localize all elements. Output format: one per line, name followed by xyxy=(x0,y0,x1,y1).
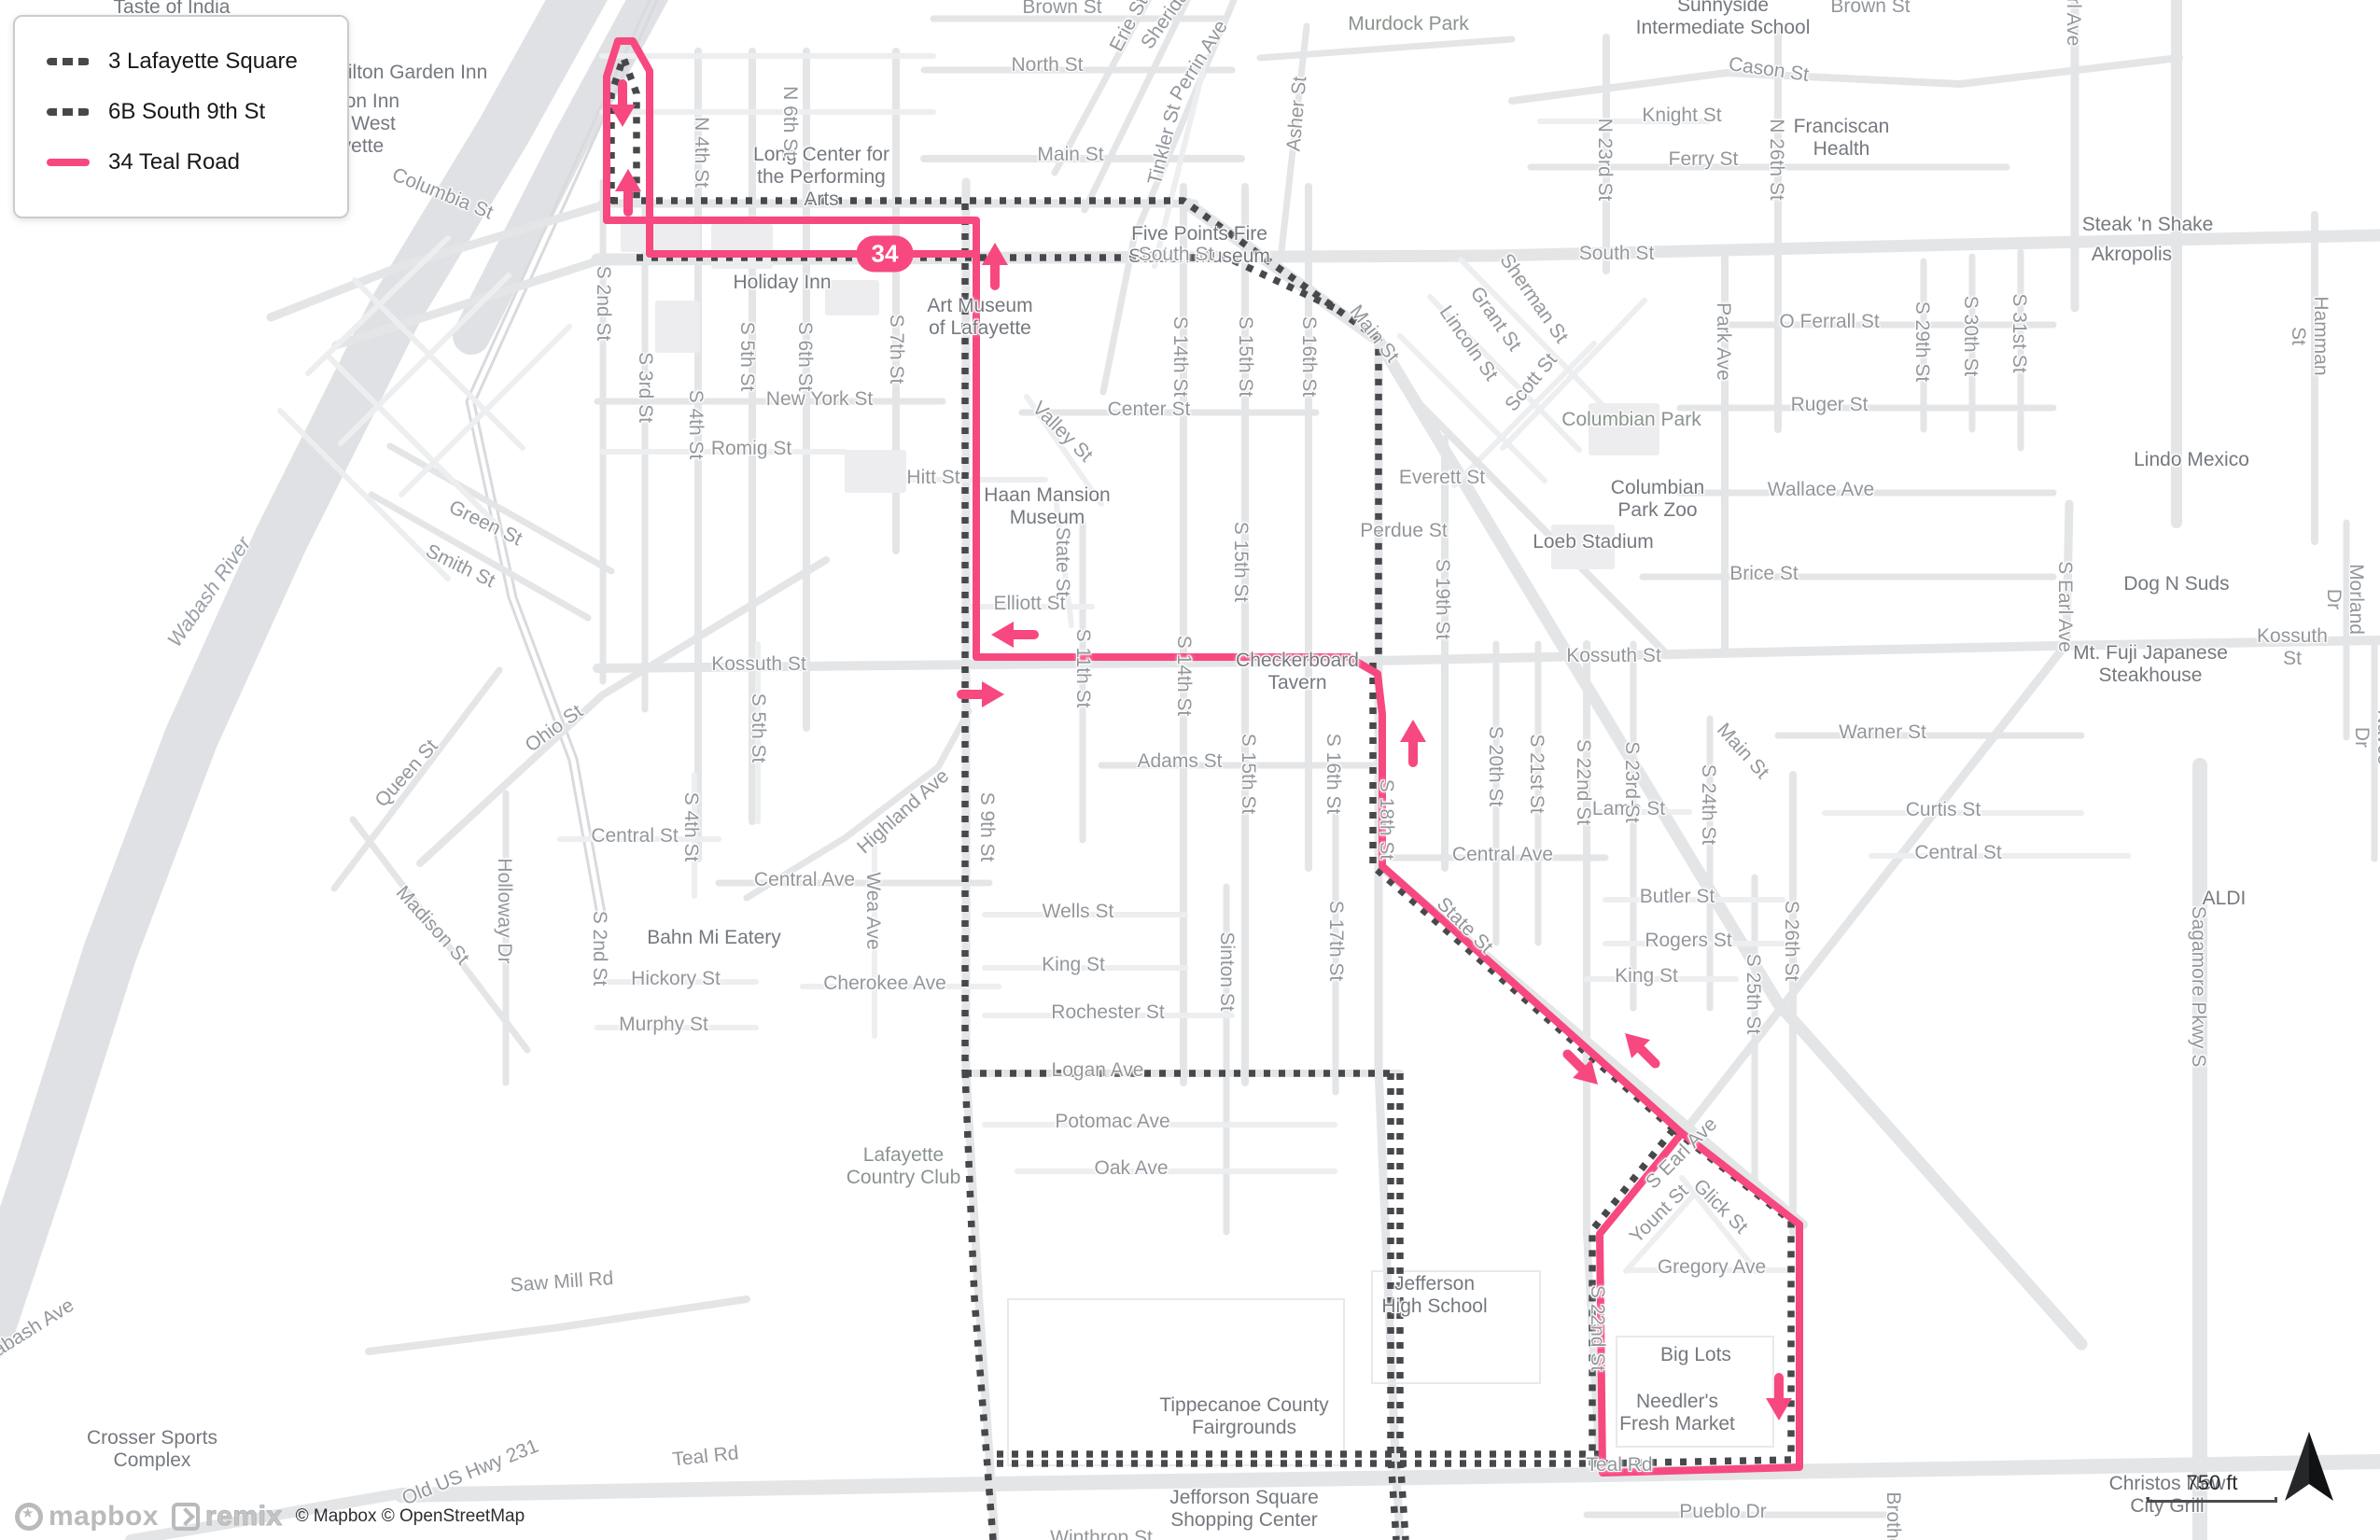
legend-item-route-6b: 6B South 9th St xyxy=(47,99,347,125)
route-3-swatch-icon xyxy=(47,58,90,65)
map-base xyxy=(0,0,2380,1540)
route-direction-arrow-icon xyxy=(1766,1378,1792,1421)
route-6b-swatch-icon xyxy=(47,108,90,116)
mapbox-logo[interactable]: mapbox xyxy=(15,1501,159,1533)
mapbox-wordmark: mapbox xyxy=(49,1501,159,1533)
copyright-links[interactable]: © Mapbox © OpenStreetMap xyxy=(296,1506,525,1527)
route-34-badge: 34 xyxy=(857,236,914,273)
map-attribution: mapbox remix © Mapbox © OpenStreetMap xyxy=(15,1501,525,1533)
route-direction-arrow-icon xyxy=(982,243,1008,286)
route-34-swatch-icon xyxy=(47,159,90,166)
route-legend: 3 Lafayette Square 6B South 9th St 34 Te… xyxy=(13,15,349,218)
route-direction-arrow-icon xyxy=(1400,720,1426,763)
legend-item-route-3: 3 Lafayette Square xyxy=(47,49,347,75)
route-3-6b-dashed-lines xyxy=(611,58,1791,1540)
scale-control: 750 ft xyxy=(2147,1471,2277,1503)
mapbox-logo-icon xyxy=(15,1503,43,1531)
compass-north-icon[interactable] xyxy=(2275,1430,2343,1508)
route-direction-arrow-icon xyxy=(991,622,1034,648)
legend-label: 6B South 9th St xyxy=(108,99,265,125)
scale-text: 750 ft xyxy=(2147,1471,2277,1495)
scale-bar xyxy=(2147,1497,2277,1503)
legend-item-route-34: 34 Teal Road xyxy=(47,149,347,175)
remix-logo: remix xyxy=(172,1501,283,1533)
remix-logo-icon xyxy=(172,1503,200,1531)
map-canvas[interactable]: { "legend": { "items": [ {"id":"route-3"… xyxy=(0,0,2380,1540)
remix-wordmark: remix xyxy=(205,1501,283,1533)
route-direction-arrow-icon xyxy=(1616,1024,1664,1072)
legend-label: 34 Teal Road xyxy=(108,149,240,175)
legend-label: 3 Lafayette Square xyxy=(108,49,298,75)
